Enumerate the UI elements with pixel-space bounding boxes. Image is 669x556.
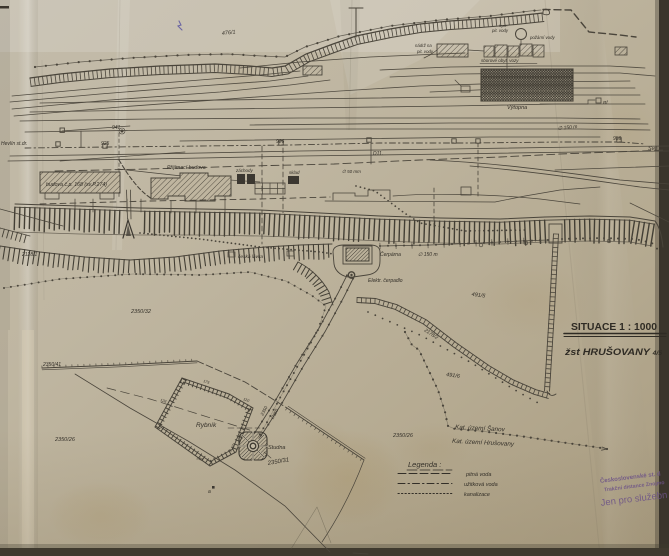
svg-text:pitná voda: pitná voda xyxy=(465,472,491,478)
svg-text:pit. vody: pit. vody xyxy=(491,28,509,33)
svg-text:požární vody: požární vody xyxy=(529,35,555,40)
svg-text:záchody: záchody xyxy=(235,168,254,173)
svg-text:sklad: sklad xyxy=(289,170,300,175)
svg-text:budova č.p. 168 (sv.P.274): budova č.p. 168 (sv.P.274) xyxy=(46,182,107,188)
svg-text:Svě: Svě xyxy=(648,146,657,152)
svg-text:Legenda :: Legenda : xyxy=(408,460,441,469)
svg-text:pit. vody: pit. vody xyxy=(416,49,434,54)
svg-text:∅ 150 m: ∅ 150 m xyxy=(418,252,438,258)
svg-text:kanalizace: kanalizace xyxy=(464,492,490,498)
svg-text:926: 926 xyxy=(276,139,285,145)
svg-text:Výtopna: Výtopna xyxy=(507,105,527,111)
svg-text:2350/26: 2350/26 xyxy=(392,433,414,439)
svg-text:a: a xyxy=(208,489,211,495)
svg-text:hydr.: hydr. xyxy=(499,23,508,28)
svg-text:Přijímací budova: Přijímací budova xyxy=(167,165,206,171)
svg-text:2128/1: 2128/1 xyxy=(21,252,38,258)
svg-text:sborové obyt. vozy: sborové obyt. vozy xyxy=(481,58,519,63)
svg-text:žst HRUŠOVANY 4/5: žst HRUŠOVANY 4/5 xyxy=(564,346,663,358)
svg-text:užitková voda: užitková voda xyxy=(464,482,498,488)
svg-text:Elektr. čerpadlo: Elektr. čerpadlo xyxy=(368,278,403,284)
svg-text:959: 959 xyxy=(613,136,622,142)
svg-text:2350/32: 2350/32 xyxy=(130,309,151,315)
svg-text:2350/41: 2350/41 xyxy=(42,362,61,368)
svg-text:2350/26: 2350/26 xyxy=(54,437,76,443)
svg-text:D11.: D11. xyxy=(373,151,383,157)
svg-text:∅ 50 mm: ∅ 50 mm xyxy=(342,169,361,174)
svg-text:nádrž na: nádrž na xyxy=(415,43,432,48)
svg-text:česká lávka: česká lávka xyxy=(238,254,263,260)
svg-text:Hevlín st.dr.: Hevlín st.dr. xyxy=(1,141,28,147)
svg-text:925: 925 xyxy=(101,141,110,147)
svg-text:Čerpárna: Čerpárna xyxy=(380,251,401,258)
svg-text:SITUACE 1 : 1000: SITUACE 1 : 1000 xyxy=(571,322,657,333)
svg-text:941: 941 xyxy=(112,125,121,131)
svg-text:Studna: Studna xyxy=(268,445,285,451)
svg-text:Bf.: Bf. xyxy=(603,100,609,106)
svg-text:Rybník: Rybník xyxy=(196,422,217,429)
